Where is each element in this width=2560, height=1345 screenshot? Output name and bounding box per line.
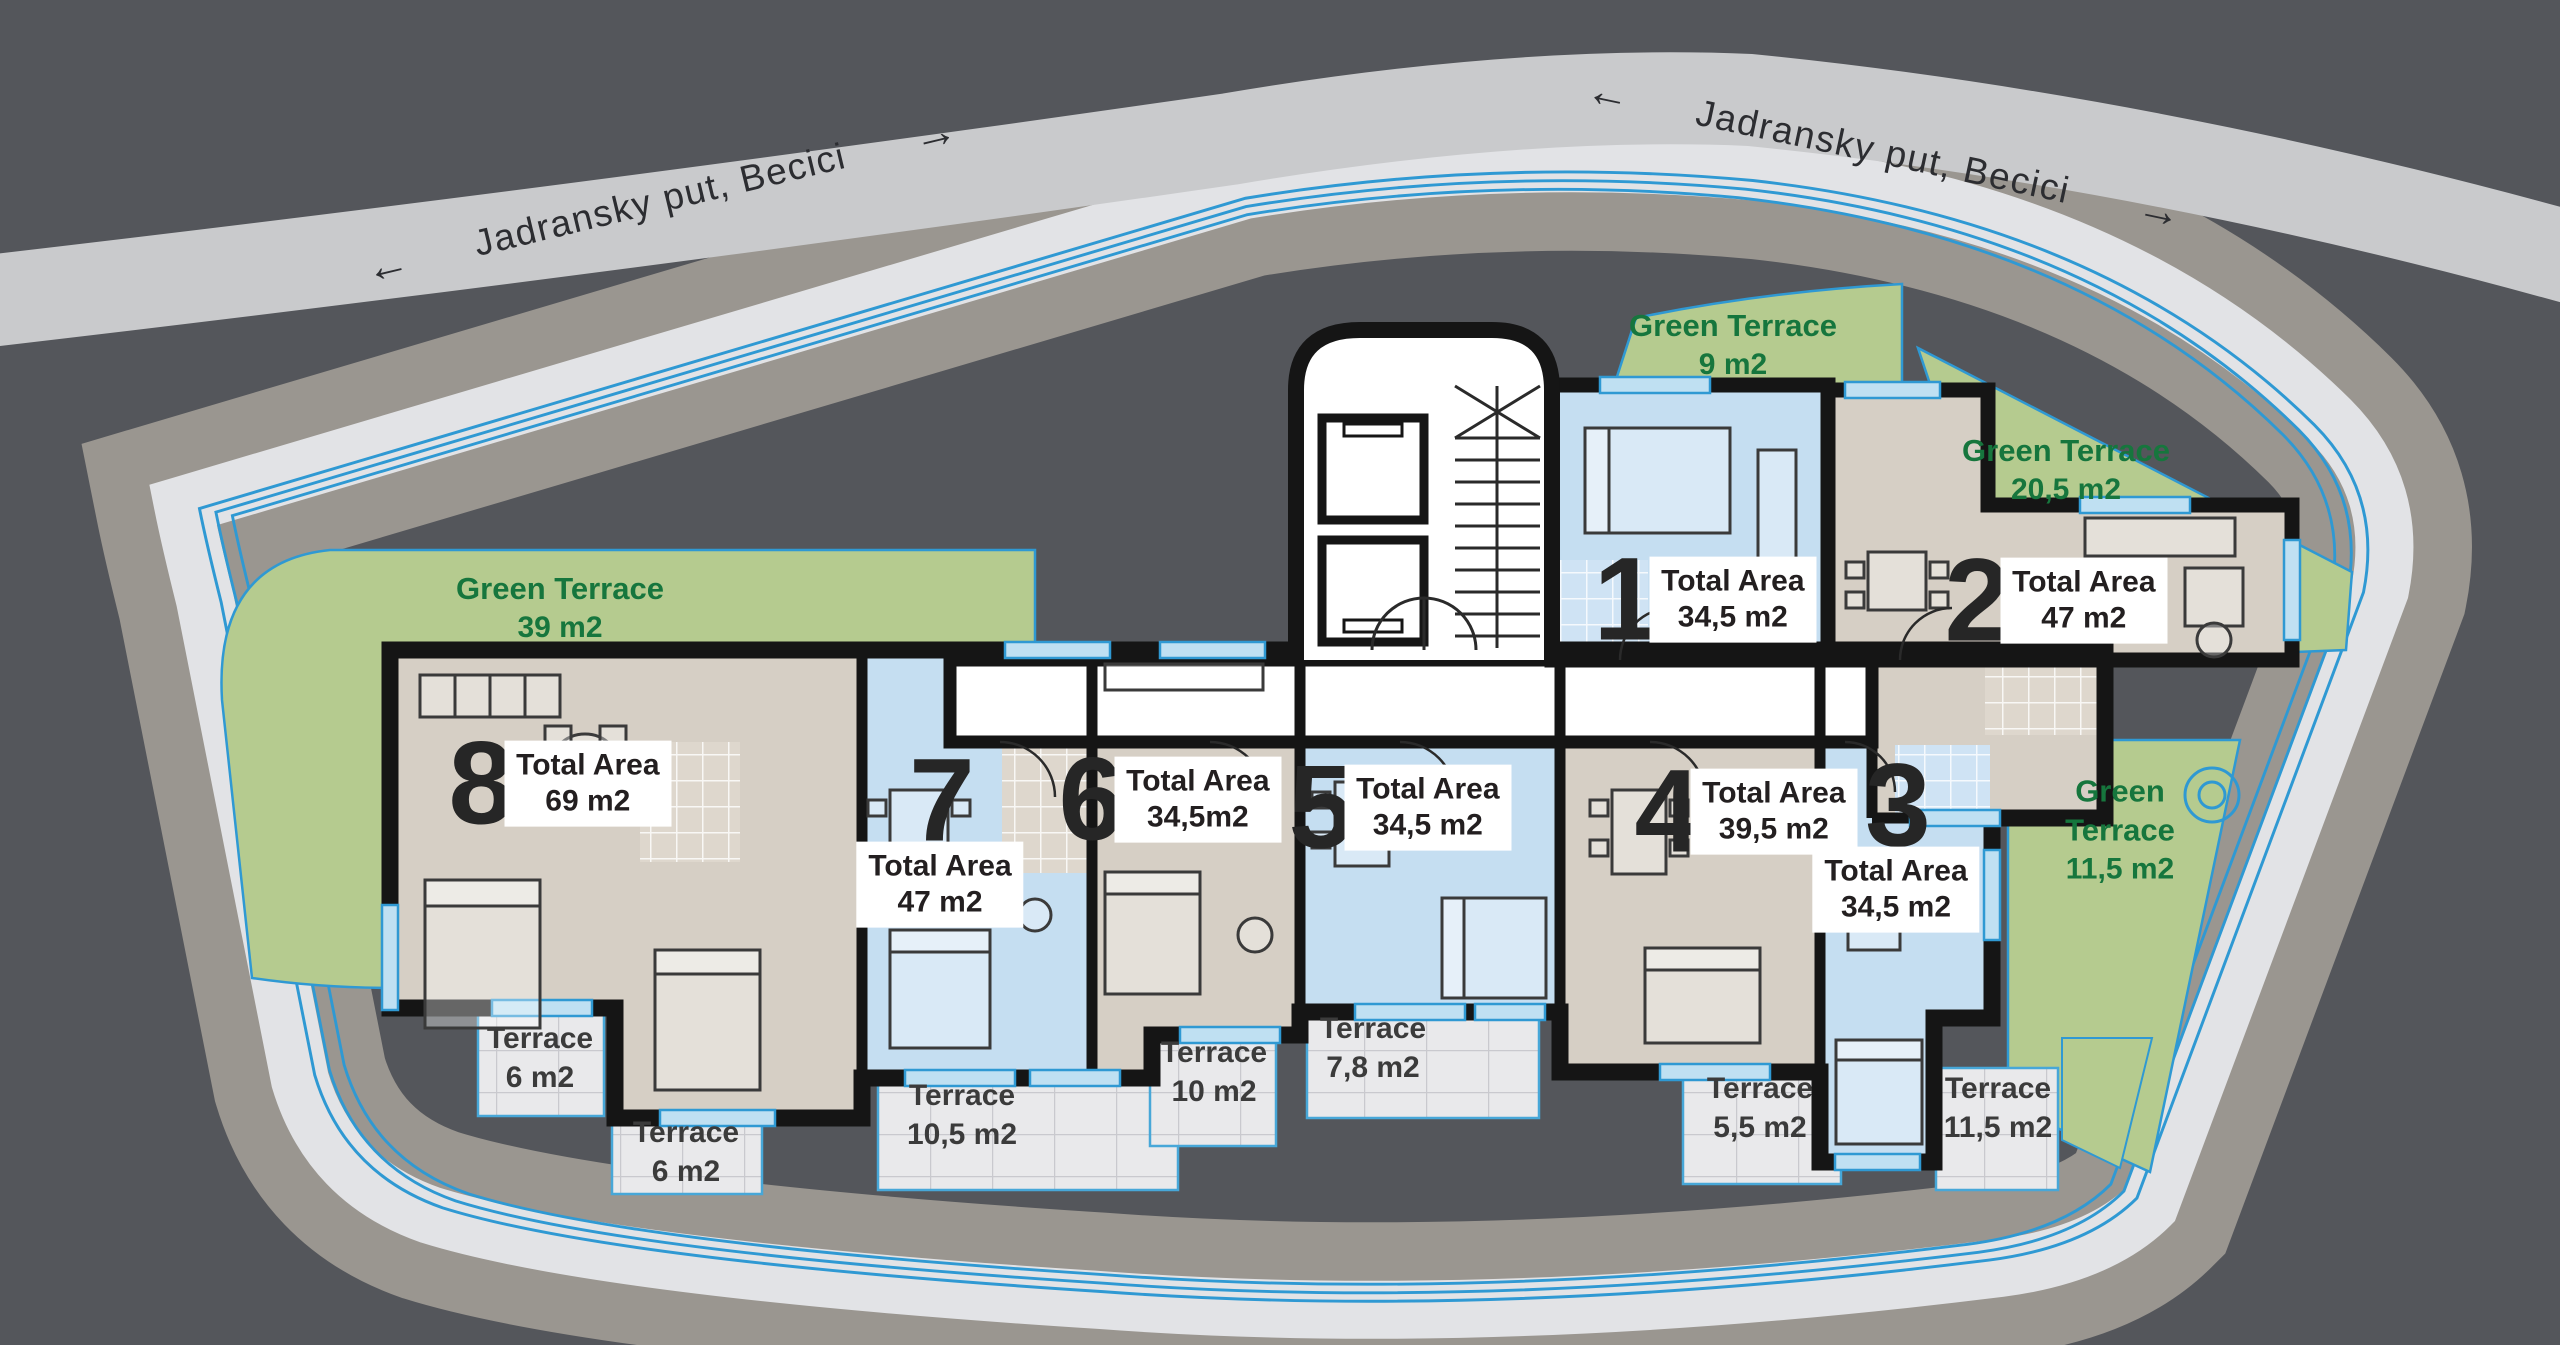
terrace-7-8-label: Terrace7,8 m2: [1320, 1009, 1426, 1087]
green-terrace-20-5-label: Green Terrace 20,5 m2: [1962, 432, 2170, 508]
terrace-5-5-label: Terrace5,5 m2: [1707, 1069, 1813, 1147]
terrace-11-5-label: Terrace11,5 m2: [1944, 1069, 2052, 1147]
apartment-2-label: 2 Total Area47 m2: [1944, 553, 2167, 650]
terrace-6b-label: Terrace6 m2: [633, 1113, 739, 1191]
terrace-10-5-label: Terrace10,5 m2: [907, 1076, 1017, 1154]
apartment-7-label: 7 Total Area47 m2: [856, 753, 1023, 928]
apartment-1-label: 1 Total Area34,5 m2: [1593, 552, 1816, 649]
green-terrace-39-label: Green Terrace 39 m2: [456, 570, 664, 646]
apartment-8-label: 8 Total Area69 m2: [448, 736, 671, 833]
apartment-5-label: 5 Total Area34,5 m2: [1288, 760, 1511, 857]
road-arrow-left-icon: ←: [1582, 65, 1633, 123]
terrace-6a-label: Terrace6 m2: [487, 1019, 593, 1097]
green-terrace-11-5-label: Green Terrace 11,5 m2: [2045, 773, 2195, 888]
floor-plan: ← Jadransky put, Becici → ← Jadransky pu…: [0, 0, 2560, 1345]
terrace-10-label: Terrace10 m2: [1161, 1033, 1267, 1111]
apartment-6-label: 6 Total Area34,5m2: [1058, 752, 1281, 849]
green-terrace-9-label: Green Terrace 9 m2: [1629, 307, 1837, 383]
apartment-4-label: 4 Total Area39,5 m2: [1634, 764, 1857, 861]
stair-core: [1296, 330, 1552, 660]
